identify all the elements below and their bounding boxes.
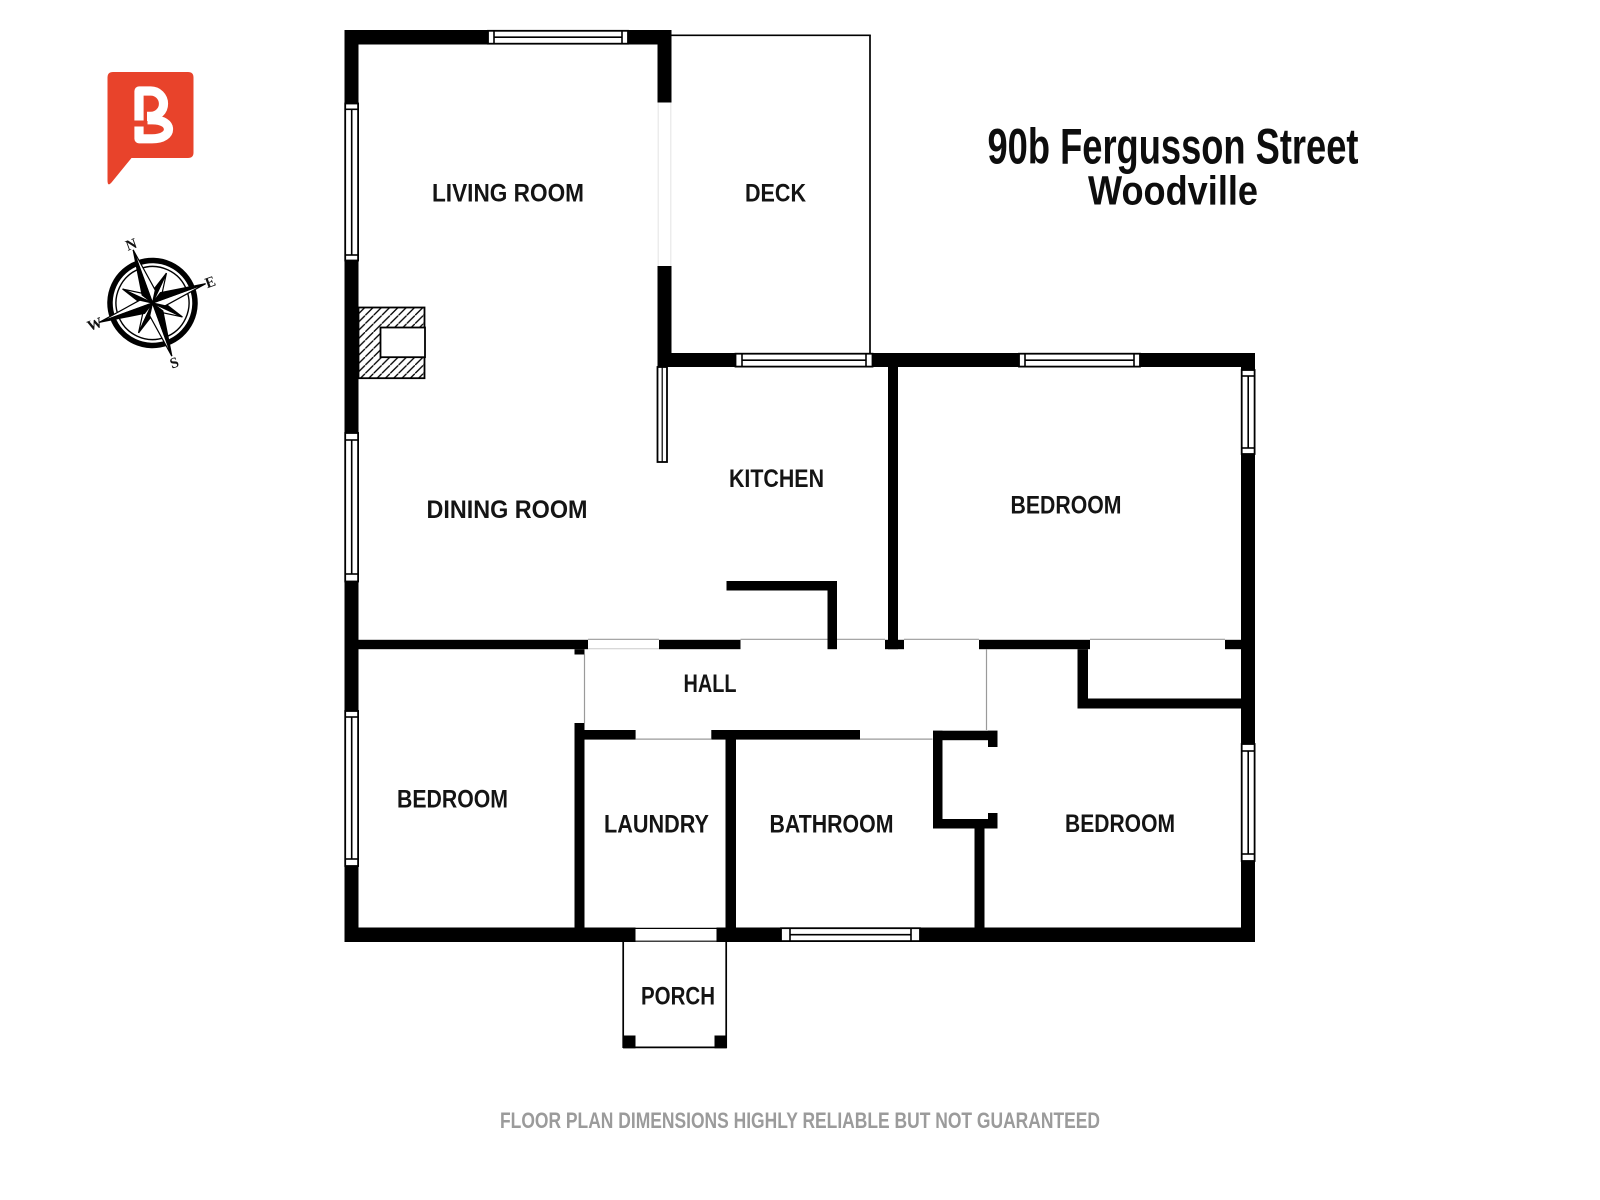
svg-text:HALL: HALL bbox=[684, 670, 737, 698]
svg-text:LAUNDRY: LAUNDRY bbox=[604, 811, 709, 839]
svg-text:90b Fergusson Street: 90b Fergusson Street bbox=[988, 119, 1359, 175]
svg-text:FLOOR PLAN DIMENSIONS HIGHLY R: FLOOR PLAN DIMENSIONS HIGHLY RELIABLE BU… bbox=[500, 1108, 1100, 1133]
svg-text:DECK: DECK bbox=[745, 180, 806, 208]
svg-text:DINING ROOM: DINING ROOM bbox=[427, 496, 588, 524]
svg-text:BATHROOM: BATHROOM bbox=[770, 811, 894, 839]
svg-text:BEDROOM: BEDROOM bbox=[397, 786, 508, 814]
svg-text:Woodville: Woodville bbox=[1088, 168, 1258, 214]
svg-text:PORCH: PORCH bbox=[641, 983, 715, 1011]
svg-text:BEDROOM: BEDROOM bbox=[1011, 492, 1122, 520]
svg-text:LIVING ROOM: LIVING ROOM bbox=[432, 180, 584, 208]
svg-text:BEDROOM: BEDROOM bbox=[1065, 810, 1175, 838]
svg-text:KITCHEN: KITCHEN bbox=[729, 465, 824, 493]
